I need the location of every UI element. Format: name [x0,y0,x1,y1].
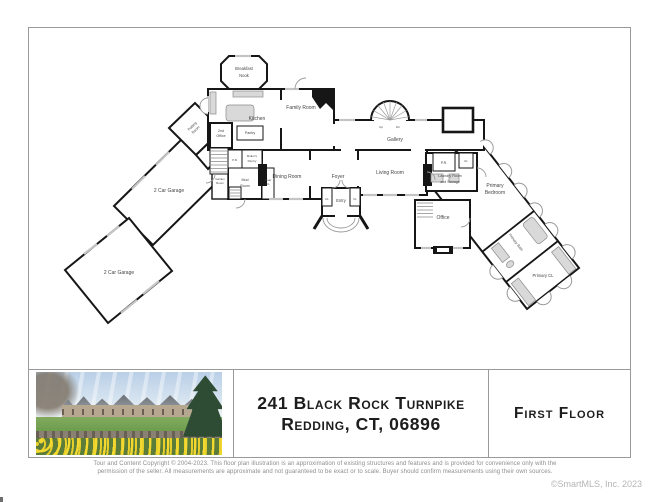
room-office [415,200,470,248]
label-laundry-2: and Storage [440,180,460,184]
label-garden-room-2: Room [216,181,224,185]
label-garage-lower: 2 Car Garage [104,270,135,276]
label-butlers-pantry: Butler's [247,154,257,158]
label-pr-kitchen: P.R. [232,158,238,162]
label-cl-hall: CL [464,159,468,163]
label-cl-entry-right: CL [353,197,357,201]
label-breakfast-nook: Breakfast [235,66,254,71]
label-mud-room: Mud [242,178,249,182]
photo-cell [29,370,233,457]
label-office: Office [437,215,450,221]
label-butlers-pantry-2: Pantry [248,159,257,163]
address-line2: Redding, CT, 06896 [281,414,441,435]
disclaimer-text: Tour and Content Copyright © 2004-2023. … [80,461,570,476]
kitchen-counter-top [233,91,263,97]
property-photo [36,372,222,455]
label-foyer: Foyer [332,174,345,180]
label-2nd-office: 2nd [218,129,224,133]
label-pantry: Pantry [245,131,256,135]
label-primary-cl: Primary CL [533,273,555,278]
label-coat-cl-2: CL [266,182,270,186]
office-chimney-inner [437,248,449,252]
floor-label: First Floor [514,405,605,423]
label-pr-hall: P.R. [441,161,448,165]
gallery-chimney [443,108,473,132]
label-gallery: Gallery [387,137,403,143]
screenshot-stage: Breakfast Nook Kitchen Family Room Galle… [0,0,650,502]
label-laundry: Laundry Room [438,174,462,178]
scan-artifact [0,497,3,502]
label-mud-room-2: Room [240,184,250,188]
floor-plan-drawing: Breakfast Nook Kitchen Family Room Galle… [29,28,630,370]
label-primary-bedroom: Primary [486,183,504,189]
label-breakfast-nook-2: Nook [239,73,250,78]
address-cell: 241 Black Rock Turnpike Redding, CT, 068… [233,370,488,457]
label-kitchen: Kitchen [249,116,266,122]
spiral-stair [371,101,409,120]
back-stairs-box [210,148,228,174]
label-stair-dn: Dn [396,125,400,129]
plan-sheet-frame: Breakfast Nook Kitchen Family Room Galle… [28,27,631,458]
mls-credit: ©SmartMLS, Inc. 2023 [551,479,642,489]
label-2nd-office-2: Office [216,134,225,138]
label-family-room: Family Room [286,105,315,111]
label-primary-bedroom-2: Bedroom [485,190,505,196]
label-entry: Entry [336,198,347,203]
title-band: 241 Black Rock Turnpike Redding, CT, 068… [29,369,630,457]
label-cl-entry-left: CL [325,197,329,201]
label-garage-upper: 2 Car Garage [154,188,185,194]
label-stair-up: Up [379,125,383,129]
floor-cell: First Floor [488,370,630,457]
kitchen-counter-left [210,92,216,114]
address-line1: 241 Black Rock Turnpike [257,393,465,414]
label-living-room: Living Room [376,170,404,176]
entry-wing-walls [314,216,368,229]
label-dining-room: Dining Room [273,174,302,180]
living-chimney [423,164,432,186]
photo-daffodils [36,438,222,455]
